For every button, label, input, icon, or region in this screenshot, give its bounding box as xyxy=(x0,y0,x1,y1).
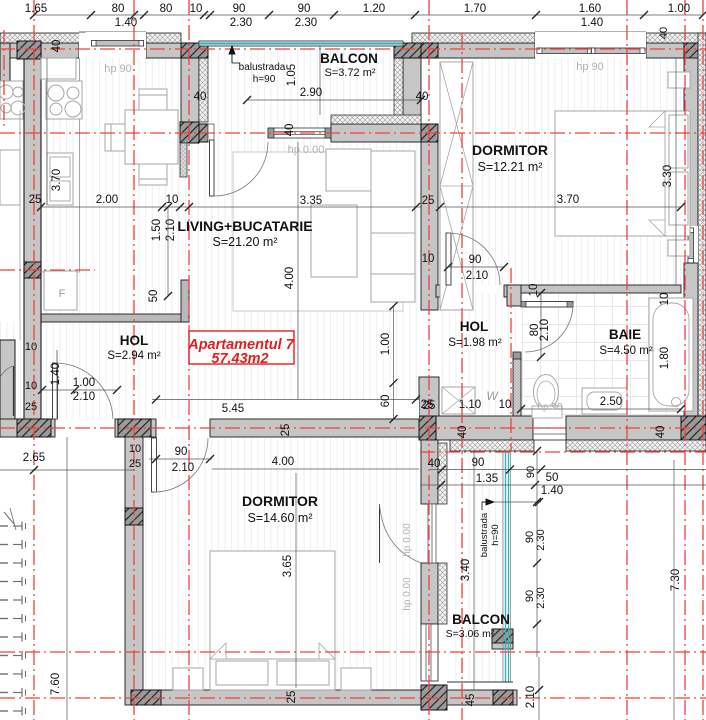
svg-text:h=90: h=90 xyxy=(490,524,501,545)
svg-text:hp 90: hp 90 xyxy=(104,63,132,75)
svg-text:1.50: 1.50 xyxy=(151,219,163,241)
svg-text:40: 40 xyxy=(284,124,296,137)
svg-text:2.65: 2.65 xyxy=(23,452,45,464)
svg-text:90: 90 xyxy=(233,3,246,15)
svg-text:2.50: 2.50 xyxy=(600,396,622,408)
svg-text:40: 40 xyxy=(655,426,667,439)
svg-text:S=12.21 m²: S=12.21 m² xyxy=(478,160,543,174)
svg-text:3.70: 3.70 xyxy=(51,169,63,191)
svg-text:3.30: 3.30 xyxy=(662,165,674,187)
svg-text:2.10: 2.10 xyxy=(73,391,95,403)
svg-text:10: 10 xyxy=(25,380,37,392)
svg-text:50: 50 xyxy=(148,290,160,303)
svg-text:1.80: 1.80 xyxy=(659,347,671,369)
svg-text:2.30: 2.30 xyxy=(535,529,547,550)
svg-text:1.10: 1.10 xyxy=(459,399,481,411)
svg-text:2.10: 2.10 xyxy=(165,219,177,241)
svg-text:2.30: 2.30 xyxy=(295,17,317,29)
svg-text:S=14.60 m²: S=14.60 m² xyxy=(248,511,313,525)
svg-text:4.00: 4.00 xyxy=(284,267,296,289)
svg-text:3.40: 3.40 xyxy=(460,559,472,581)
svg-text:hp 0.00: hp 0.00 xyxy=(288,144,325,156)
svg-text:2.10: 2.10 xyxy=(466,270,488,282)
svg-text:1.20: 1.20 xyxy=(363,3,385,15)
svg-text:10: 10 xyxy=(499,399,512,411)
svg-text:50: 50 xyxy=(546,472,559,484)
svg-text:1.00: 1.00 xyxy=(73,377,95,389)
svg-text:HOL: HOL xyxy=(460,319,489,334)
svg-text:80: 80 xyxy=(112,3,125,15)
svg-text:10: 10 xyxy=(659,293,671,306)
svg-text:S=4.50 m²: S=4.50 m² xyxy=(599,345,653,357)
svg-text:S=2.94 m²: S=2.94 m² xyxy=(107,350,161,362)
svg-text:90: 90 xyxy=(175,446,188,458)
svg-text:LIVING+BUCATARIE: LIVING+BUCATARIE xyxy=(177,218,312,234)
svg-text:BAIE: BAIE xyxy=(609,327,641,342)
svg-text:balustrada: balustrada xyxy=(239,62,286,73)
svg-text:BALCON: BALCON xyxy=(452,612,510,627)
svg-text:2.30: 2.30 xyxy=(230,17,252,29)
svg-text:40: 40 xyxy=(51,40,63,53)
svg-text:25: 25 xyxy=(129,458,141,470)
svg-text:hp 0.00: hp 0.00 xyxy=(402,577,413,611)
svg-text:7.30: 7.30 xyxy=(670,569,682,591)
svg-text:25: 25 xyxy=(29,194,42,206)
svg-text:5.45: 5.45 xyxy=(222,403,244,415)
svg-text:4.00: 4.00 xyxy=(272,456,294,468)
svg-text:3.35: 3.35 xyxy=(300,195,322,207)
svg-text:80: 80 xyxy=(160,3,173,15)
svg-text:90: 90 xyxy=(298,3,311,15)
svg-text:hp 0.00: hp 0.00 xyxy=(402,523,413,557)
svg-text:1.40: 1.40 xyxy=(541,485,563,497)
svg-text:40: 40 xyxy=(194,91,207,103)
svg-text:F: F xyxy=(59,288,66,300)
svg-text:45: 45 xyxy=(465,694,477,707)
svg-text:hp 90: hp 90 xyxy=(576,61,604,73)
svg-text:25: 25 xyxy=(25,401,37,413)
svg-text:90: 90 xyxy=(525,466,537,478)
svg-text:DORMITOR: DORMITOR xyxy=(472,142,548,158)
svg-text:90: 90 xyxy=(469,254,482,266)
svg-text:W: W xyxy=(486,389,499,403)
svg-text:10: 10 xyxy=(190,3,203,15)
svg-text:1.70: 1.70 xyxy=(464,3,486,15)
svg-text:40: 40 xyxy=(658,27,670,39)
svg-text:2.90: 2.90 xyxy=(300,87,322,99)
svg-text:40: 40 xyxy=(416,91,429,103)
svg-text:10: 10 xyxy=(166,194,179,206)
svg-text:3.65: 3.65 xyxy=(282,555,294,577)
svg-text:40: 40 xyxy=(457,426,469,439)
svg-text:25: 25 xyxy=(421,399,434,411)
svg-text:hp 90: hp 90 xyxy=(537,402,562,413)
svg-text:1.60: 1.60 xyxy=(579,3,601,15)
svg-text:10: 10 xyxy=(129,443,141,455)
svg-text:2.30: 2.30 xyxy=(535,587,547,608)
svg-text:40: 40 xyxy=(428,458,441,470)
svg-text:10: 10 xyxy=(422,253,435,265)
svg-text:2.00: 2.00 xyxy=(96,194,118,206)
svg-text:S=3.72 m²: S=3.72 m² xyxy=(324,67,375,79)
svg-text:1.40: 1.40 xyxy=(581,17,603,29)
svg-text:HOL: HOL xyxy=(120,333,149,348)
svg-text:1.00: 1.00 xyxy=(668,3,690,15)
svg-text:25: 25 xyxy=(422,195,435,207)
svg-text:90: 90 xyxy=(472,457,485,469)
svg-text:DORMITOR: DORMITOR xyxy=(242,493,318,509)
svg-text:S=21.20 m²: S=21.20 m² xyxy=(213,235,278,249)
svg-text:1.05: 1.05 xyxy=(286,64,298,86)
svg-text:1.40: 1.40 xyxy=(115,17,137,29)
svg-text:60: 60 xyxy=(380,395,392,408)
svg-text:h=90: h=90 xyxy=(253,74,276,85)
svg-text:57.43m2: 57.43m2 xyxy=(211,351,268,367)
svg-text:2.10: 2.10 xyxy=(525,686,537,708)
svg-text:1.35: 1.35 xyxy=(476,473,498,485)
svg-text:S=3.06 m²: S=3.06 m² xyxy=(446,628,495,640)
svg-text:2.10: 2.10 xyxy=(172,462,194,474)
svg-text:3.70: 3.70 xyxy=(557,194,579,206)
svg-text:10: 10 xyxy=(25,341,37,353)
svg-text:S=1.98 m²: S=1.98 m² xyxy=(448,337,502,349)
svg-text:2.10: 2.10 xyxy=(539,319,551,341)
svg-text:10: 10 xyxy=(528,284,540,297)
svg-text:BALCON: BALCON xyxy=(320,51,378,66)
svg-text:1.65: 1.65 xyxy=(25,3,47,15)
svg-text:25: 25 xyxy=(286,691,298,704)
svg-text:1.40: 1.40 xyxy=(50,363,62,385)
svg-text:balustrada: balustrada xyxy=(479,512,490,557)
svg-text:1.00: 1.00 xyxy=(380,333,392,355)
svg-text:7.60: 7.60 xyxy=(50,673,62,695)
svg-text:25: 25 xyxy=(280,424,292,437)
